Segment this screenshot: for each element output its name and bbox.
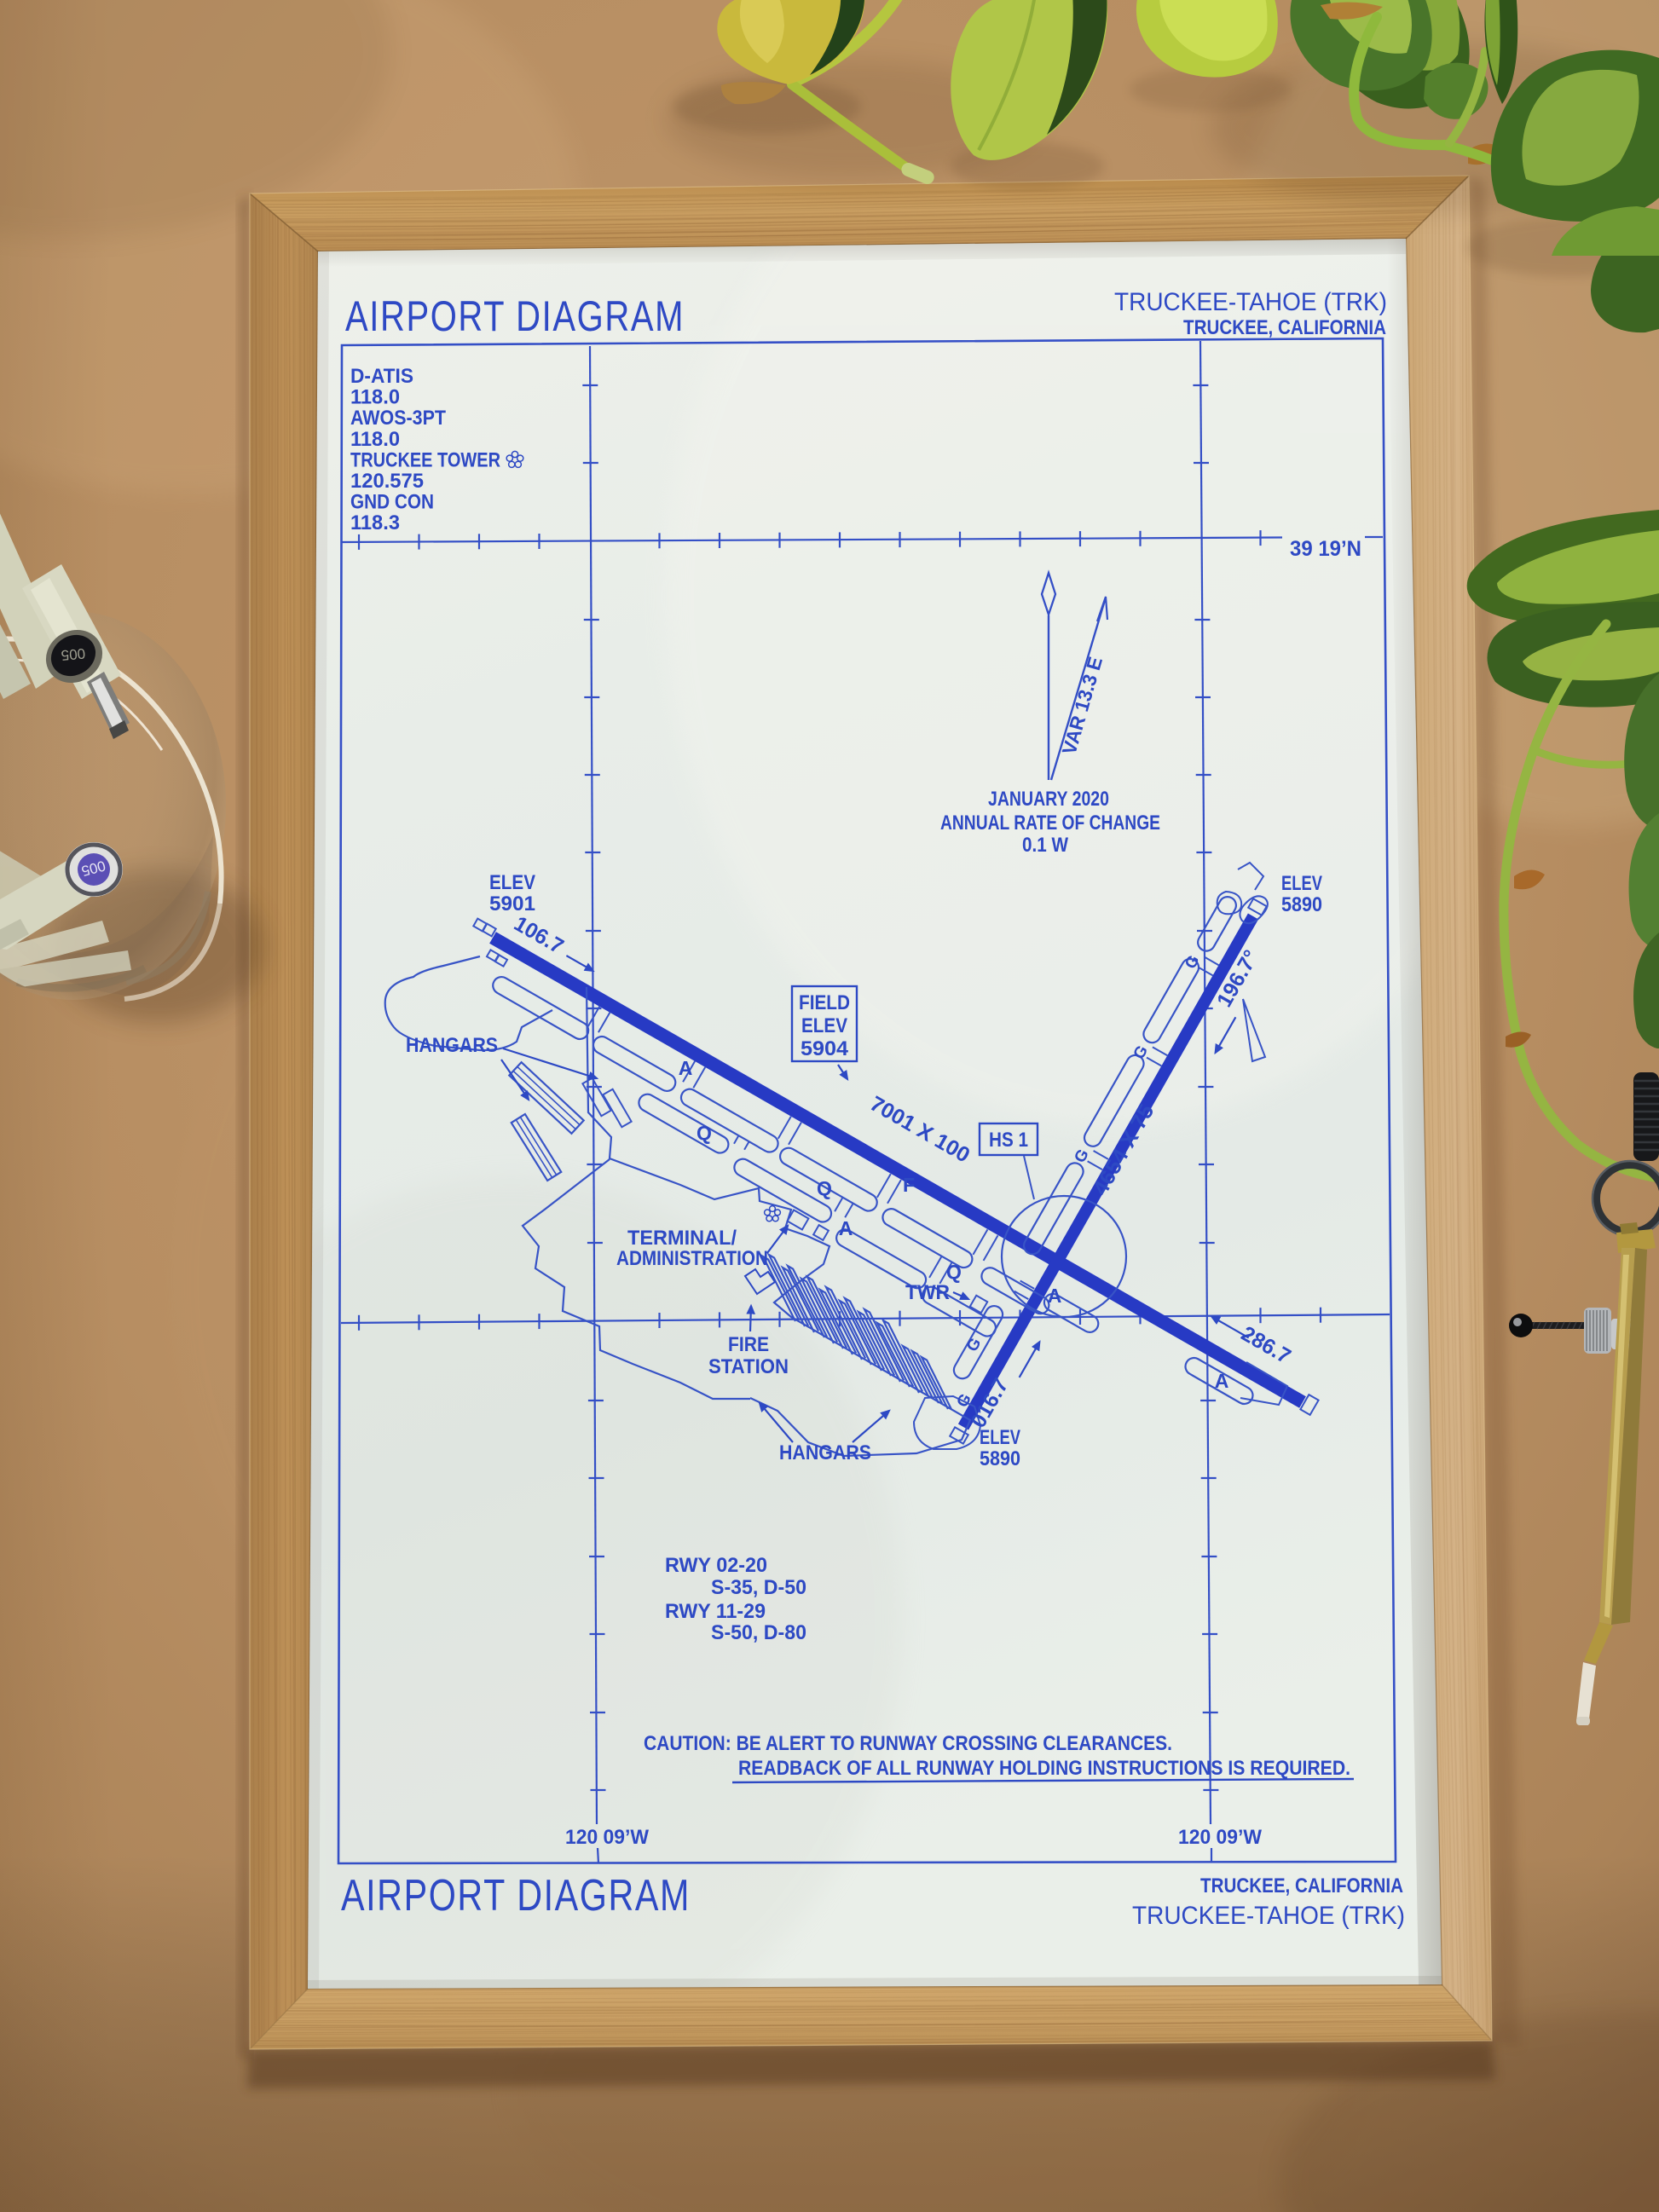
- svg-text:ELEV: ELEV: [489, 871, 535, 894]
- svg-text:HANGARS: HANGARS: [779, 1441, 871, 1464]
- svg-text:READBACK OF ALL RUNWAY HOLDING: READBACK OF ALL RUNWAY HOLDING INSTRUCTI…: [738, 1757, 1350, 1780]
- svg-text:118.0: 118.0: [350, 386, 400, 409]
- svg-text:F: F: [903, 1174, 915, 1196]
- svg-text:HANGARS: HANGARS: [406, 1034, 498, 1057]
- svg-text:5890: 5890: [1281, 893, 1322, 916]
- svg-text:A: A: [679, 1057, 693, 1079]
- svg-text:FIELD: FIELD: [799, 991, 850, 1014]
- svg-text:TWR: TWR: [905, 1281, 950, 1304]
- svg-text:RWY 11-29: RWY 11-29: [665, 1600, 766, 1623]
- svg-text:D-ATIS: D-ATIS: [350, 365, 413, 388]
- svg-text:ANNUAL RATE OF CHANGE: ANNUAL RATE OF CHANGE: [940, 811, 1160, 835]
- svg-text:CAUTION: BE ALERT TO RUNWAY CR: CAUTION: BE ALERT TO RUNWAY CROSSING CLE…: [644, 1732, 1172, 1755]
- svg-text:TRUCKEE-TAHOE (TRK): TRUCKEE-TAHOE (TRK): [1132, 1902, 1405, 1930]
- svg-text:5890: 5890: [980, 1447, 1020, 1470]
- svg-text:TRUCKEE, CALIFORNIA: TRUCKEE, CALIFORNIA: [1183, 316, 1386, 339]
- svg-text:120 09’W: 120 09’W: [1178, 1826, 1262, 1849]
- svg-text:A: A: [1215, 1370, 1229, 1392]
- svg-text:Q: Q: [817, 1177, 832, 1199]
- svg-text:RWY 02-20: RWY 02-20: [665, 1554, 767, 1577]
- svg-text:A: A: [1048, 1285, 1062, 1307]
- svg-text:AWOS-3PT: AWOS-3PT: [350, 407, 446, 430]
- svg-text:Q: Q: [946, 1261, 962, 1283]
- svg-text:ELEV: ELEV: [801, 1014, 847, 1037]
- svg-text:S-35, D-50: S-35, D-50: [711, 1576, 806, 1599]
- svg-text:JANUARY 2020: JANUARY 2020: [988, 788, 1109, 811]
- svg-text:Q: Q: [697, 1122, 712, 1144]
- svg-text:TRUCKEE, CALIFORNIA: TRUCKEE, CALIFORNIA: [1200, 1874, 1403, 1897]
- svg-text:118.0: 118.0: [350, 428, 400, 451]
- svg-text:AIRPORT DIAGRAM: AIRPORT DIAGRAM: [345, 292, 685, 340]
- svg-text:STATION: STATION: [708, 1355, 789, 1378]
- svg-text:GND CON: GND CON: [350, 491, 434, 514]
- svg-text:FIRE: FIRE: [728, 1333, 769, 1356]
- svg-text:005: 005: [61, 645, 86, 663]
- svg-text:ADMINISTRATION: ADMINISTRATION: [616, 1247, 768, 1270]
- svg-text:HS 1: HS 1: [989, 1129, 1028, 1152]
- svg-text:S-50, D-80: S-50, D-80: [711, 1621, 806, 1644]
- svg-text:ELEV: ELEV: [980, 1426, 1020, 1449]
- svg-text:TRUCKEE-TAHOE (TRK): TRUCKEE-TAHOE (TRK): [1114, 288, 1387, 316]
- svg-text:5901: 5901: [489, 892, 535, 915]
- svg-text:0.1 W: 0.1 W: [1022, 834, 1068, 857]
- svg-text:A: A: [839, 1217, 853, 1239]
- svg-text:AIRPORT DIAGRAM: AIRPORT DIAGRAM: [341, 1871, 691, 1920]
- svg-text:120 09’W: 120 09’W: [565, 1826, 649, 1849]
- svg-text:39 19’N: 39 19’N: [1290, 537, 1361, 561]
- svg-text:120.575: 120.575: [350, 470, 424, 493]
- svg-text:TERMINAL/: TERMINAL/: [627, 1227, 737, 1250]
- svg-text:5904: 5904: [801, 1037, 849, 1060]
- svg-text:118.3: 118.3: [350, 511, 400, 534]
- svg-text:TRUCKEE TOWER: TRUCKEE TOWER: [350, 448, 500, 471]
- svg-text:ELEV: ELEV: [1281, 872, 1322, 895]
